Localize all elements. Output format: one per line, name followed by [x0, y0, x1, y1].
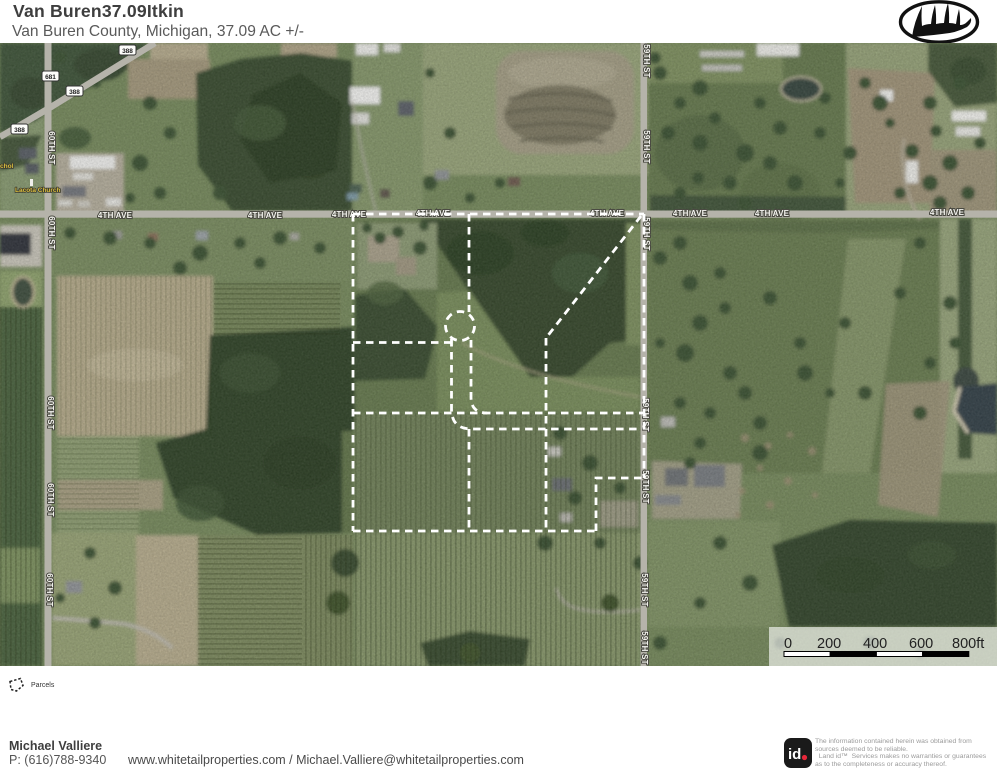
- svg-text:59TH ST: 59TH ST: [640, 631, 649, 664]
- svg-text:681: 681: [45, 74, 56, 81]
- svg-text:60TH ST: 60TH ST: [45, 573, 54, 606]
- svg-text:200: 200: [817, 636, 841, 652]
- svg-text:4TH AVE: 4TH AVE: [98, 211, 133, 220]
- svg-text:59TH ST: 59TH ST: [640, 573, 649, 606]
- svg-text:4TH AVE: 4TH AVE: [673, 209, 708, 218]
- svg-text:4TH AVE: 4TH AVE: [332, 210, 367, 219]
- svg-text:60TH ST: 60TH ST: [46, 483, 55, 516]
- svg-text:59TH ST: 59TH ST: [641, 470, 650, 503]
- svg-text:800ft: 800ft: [952, 636, 984, 652]
- svg-text:388: 388: [69, 89, 80, 96]
- svg-text:4TH AVE: 4TH AVE: [248, 211, 283, 220]
- svg-text:4TH AVE: 4TH AVE: [930, 208, 965, 217]
- svg-text:Lacota Church: Lacota Church: [15, 187, 61, 194]
- svg-text:60TH ST: 60TH ST: [46, 396, 55, 429]
- svg-text:400: 400: [863, 636, 887, 652]
- svg-text:4TH AVE: 4TH AVE: [755, 209, 790, 218]
- svg-text:59TH ST: 59TH ST: [642, 130, 651, 163]
- svg-text:0: 0: [784, 636, 792, 652]
- svg-text:60TH ST: 60TH ST: [47, 131, 56, 164]
- svg-text:59TH ST: 59TH ST: [641, 398, 650, 431]
- svg-text:59TH ST: 59TH ST: [642, 44, 651, 77]
- svg-text:60TH ST: 60TH ST: [47, 216, 56, 249]
- svg-text:chol: chol: [0, 163, 14, 170]
- svg-text:id: id: [788, 746, 801, 763]
- svg-text:388: 388: [122, 48, 133, 55]
- svg-text:388: 388: [14, 127, 25, 134]
- svg-text:600: 600: [909, 636, 933, 652]
